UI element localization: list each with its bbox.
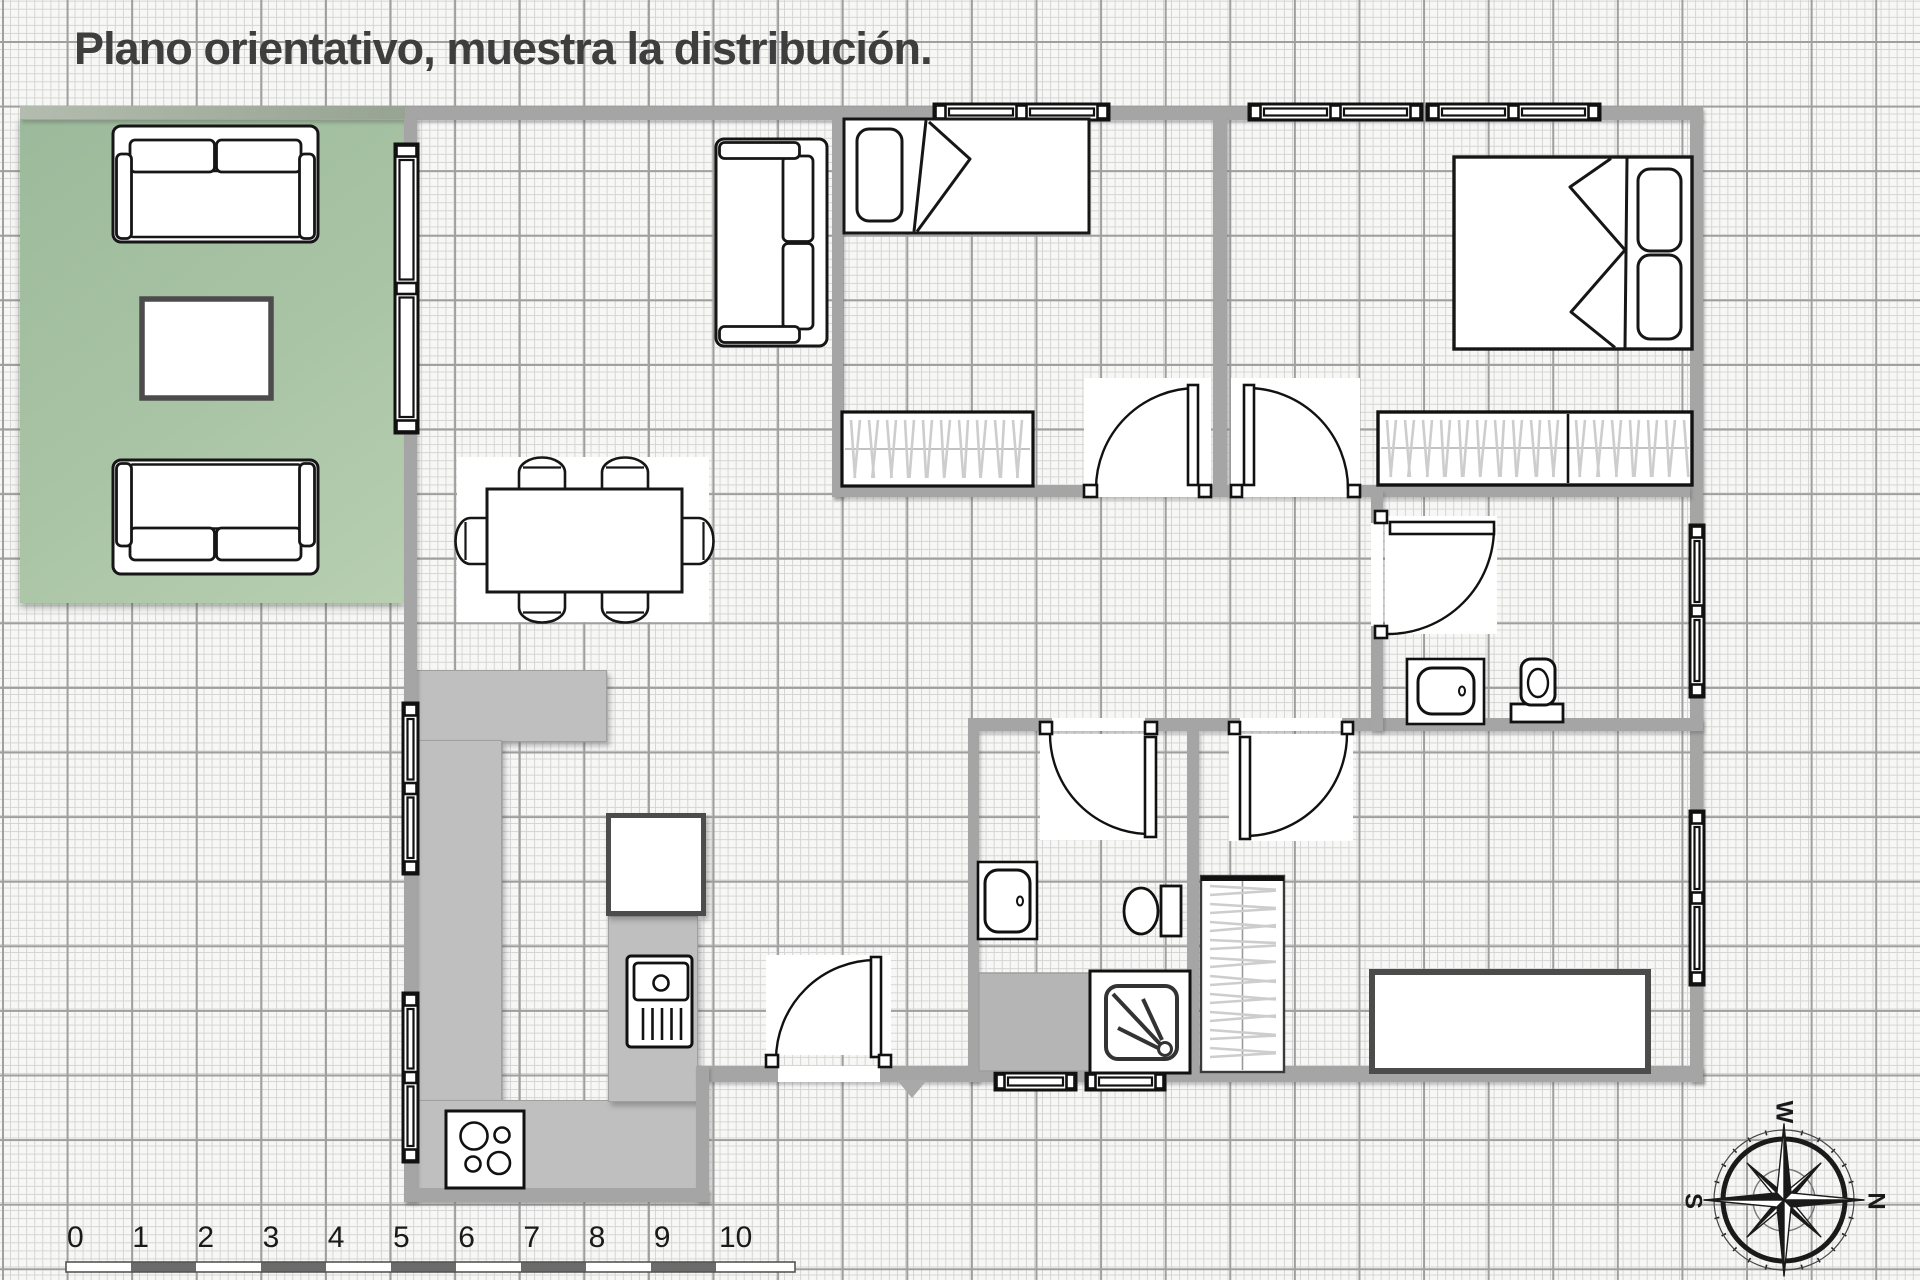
svg-text:4: 4 xyxy=(328,1221,345,1254)
svg-text:2: 2 xyxy=(197,1221,214,1254)
svg-text:7: 7 xyxy=(523,1221,540,1254)
svg-text:N: N xyxy=(1863,1192,1890,1209)
svg-text:S: S xyxy=(1680,1193,1707,1209)
svg-text:5: 5 xyxy=(393,1221,410,1254)
svg-text:6: 6 xyxy=(458,1221,475,1254)
svg-text:0: 0 xyxy=(67,1221,84,1254)
svg-text:10: 10 xyxy=(719,1221,752,1254)
svg-text:W: W xyxy=(1771,1101,1798,1124)
svg-text:1: 1 xyxy=(132,1221,149,1254)
svg-text:3: 3 xyxy=(263,1221,280,1254)
svg-text:8: 8 xyxy=(589,1221,606,1254)
svg-text:9: 9 xyxy=(654,1221,671,1254)
